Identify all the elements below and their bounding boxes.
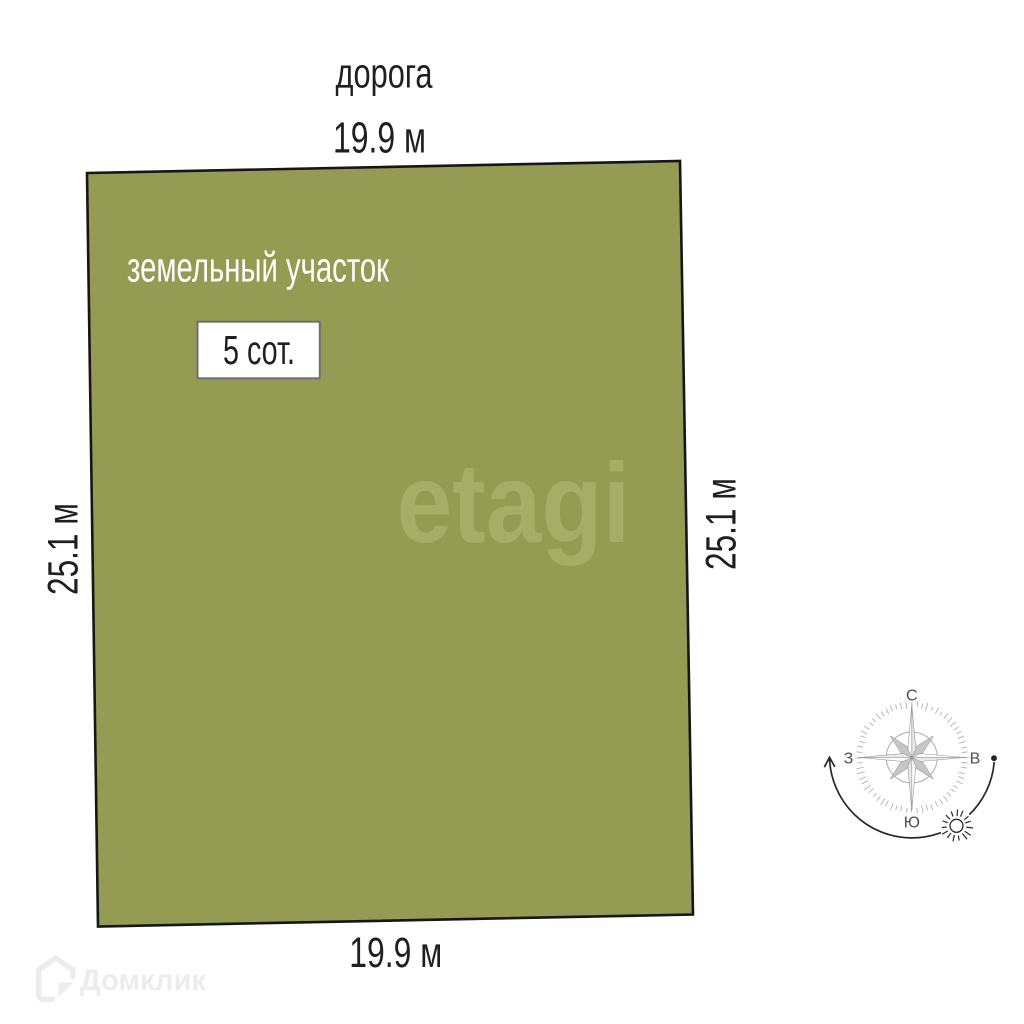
- svg-text:З: З: [844, 751, 854, 768]
- svg-text:С: С: [906, 688, 918, 705]
- svg-text:5 сот.: 5 сот.: [223, 327, 295, 373]
- svg-text:25.1 м: 25.1 м: [698, 478, 746, 570]
- svg-text:земельный участок: земельный участок: [127, 244, 389, 291]
- svg-text:Домклик: Домклик: [80, 964, 207, 997]
- svg-text:Ю: Ю: [904, 815, 920, 832]
- svg-text:19.9 м: 19.9 м: [333, 113, 426, 162]
- svg-text:25.1 м: 25.1 м: [39, 503, 87, 595]
- svg-text:В: В: [970, 751, 981, 768]
- svg-text:19.9 м: 19.9 м: [349, 929, 442, 977]
- svg-text:дорога: дорога: [336, 50, 433, 97]
- svg-text:etagi: etagi: [397, 440, 631, 566]
